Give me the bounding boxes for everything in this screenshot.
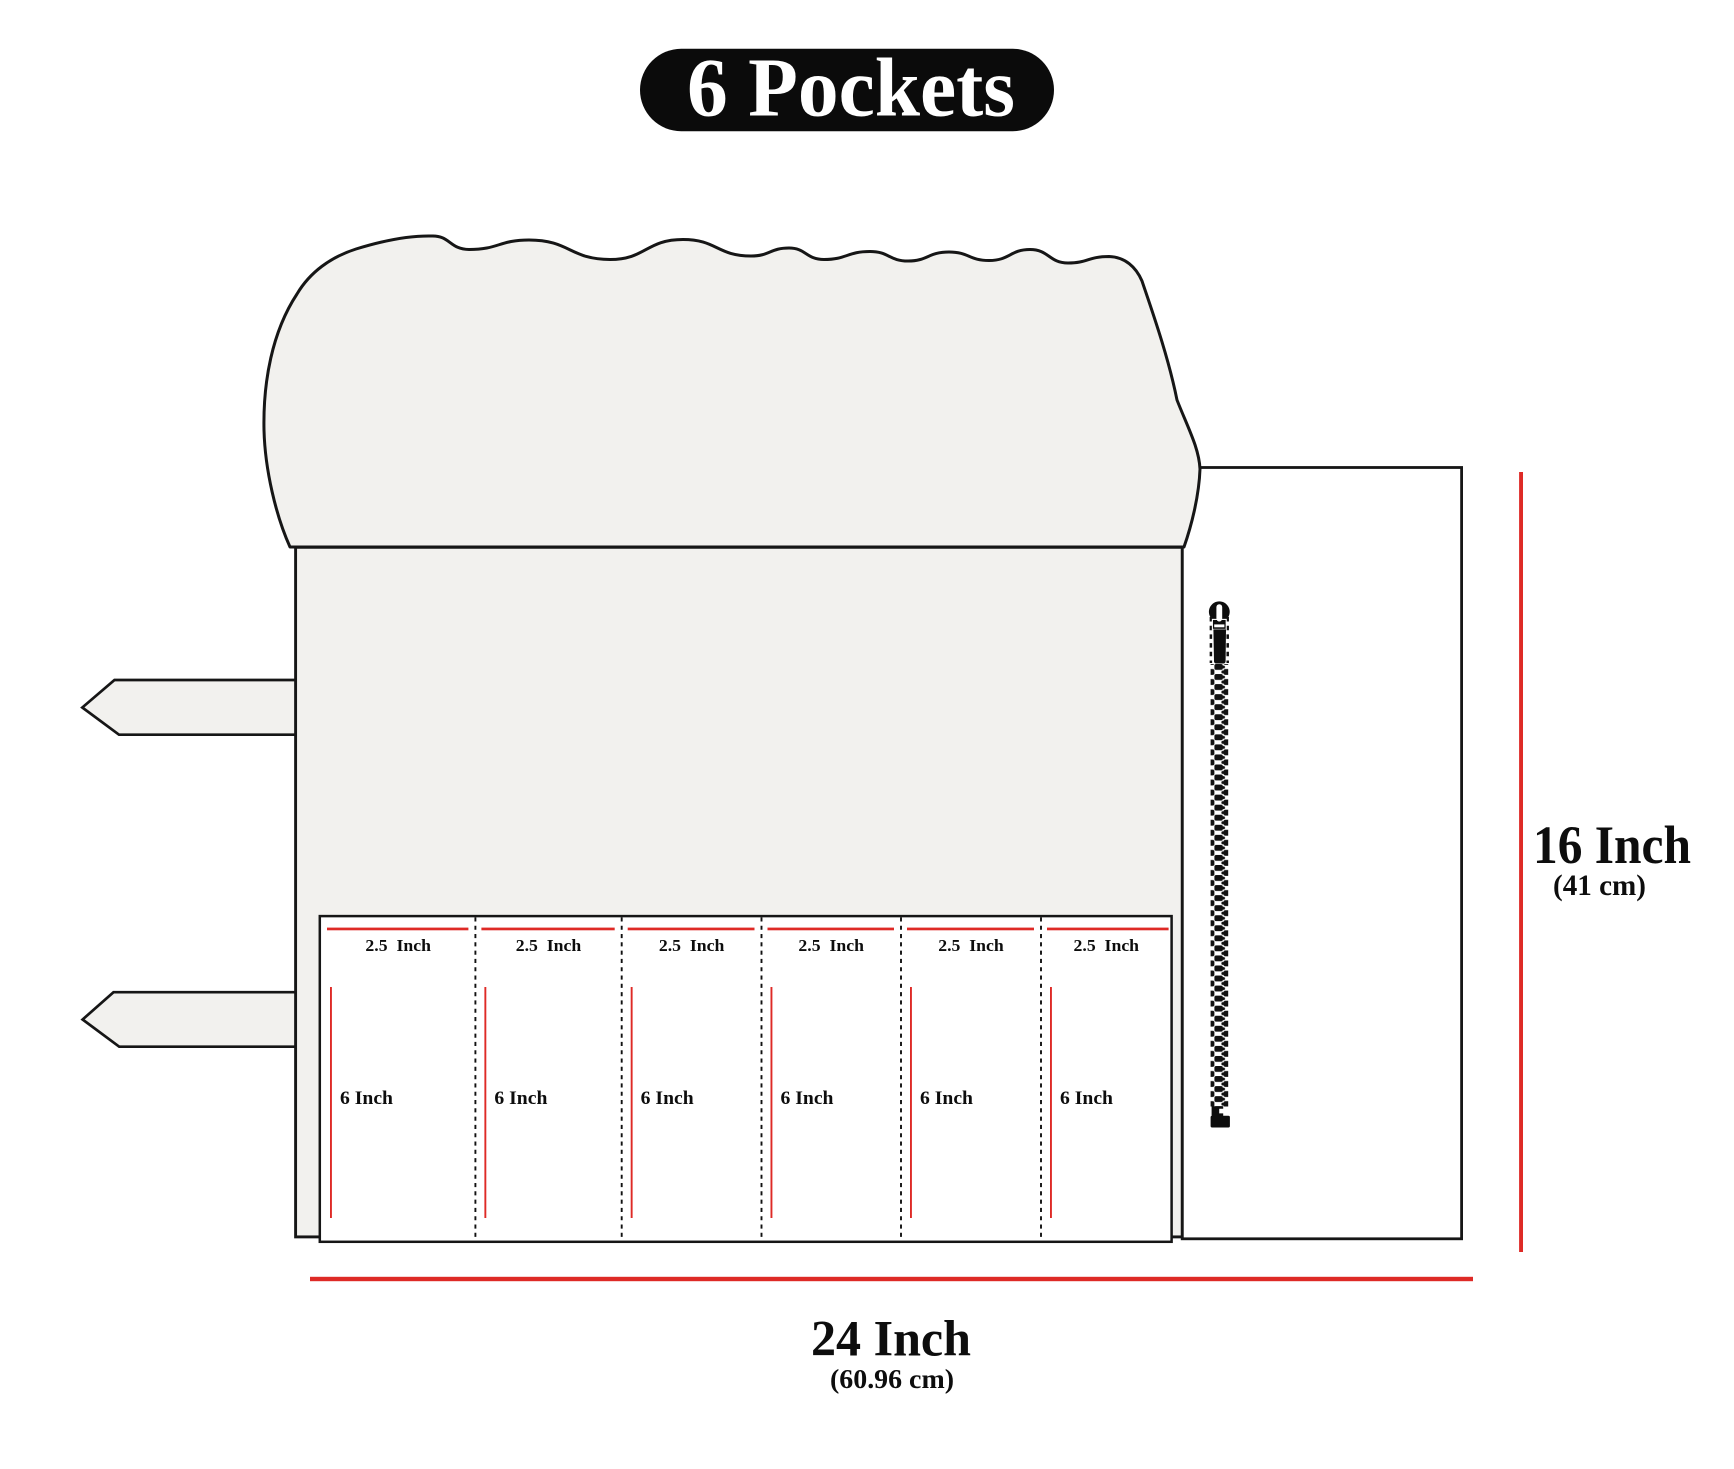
- svg-text:2.5 Inch: 2.5 Inch: [938, 936, 1004, 955]
- svg-text:6 Inch: 6 Inch: [920, 1088, 973, 1109]
- svg-text:24 Inch: 24 Inch: [811, 1311, 971, 1367]
- svg-text:6 Pockets: 6 Pockets: [687, 42, 1015, 135]
- svg-text:2.5 Inch: 2.5 Inch: [659, 936, 725, 955]
- svg-text:6 Inch: 6 Inch: [494, 1088, 547, 1109]
- svg-text:2.5 Inch: 2.5 Inch: [1074, 936, 1140, 955]
- svg-text:6 Inch: 6 Inch: [641, 1088, 694, 1109]
- svg-text:16 Inch: 16 Inch: [1533, 815, 1691, 875]
- svg-text:2.5 Inch: 2.5 Inch: [798, 936, 864, 955]
- svg-text:2.5 Inch: 2.5 Inch: [365, 936, 431, 955]
- svg-text:6 Inch: 6 Inch: [340, 1088, 393, 1109]
- svg-text:(60.96 cm): (60.96 cm): [830, 1364, 954, 1394]
- svg-text:6 Inch: 6 Inch: [1060, 1088, 1113, 1109]
- svg-text:(41 cm): (41 cm): [1553, 869, 1646, 902]
- svg-text:6 Inch: 6 Inch: [781, 1088, 834, 1109]
- svg-text:2.5 Inch: 2.5 Inch: [516, 936, 582, 955]
